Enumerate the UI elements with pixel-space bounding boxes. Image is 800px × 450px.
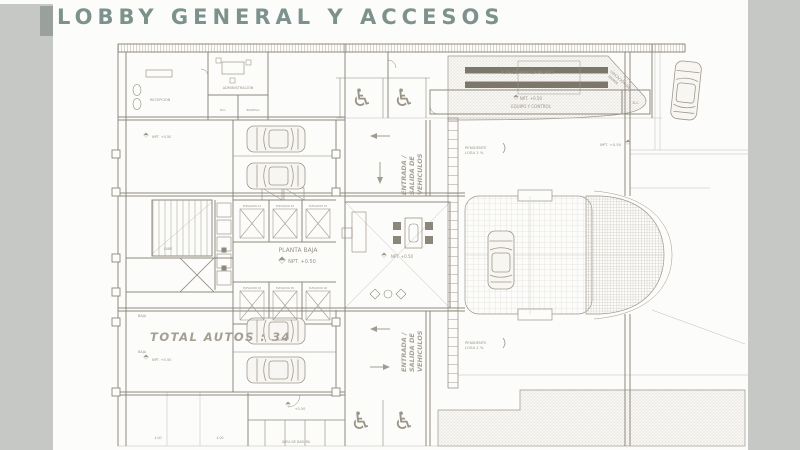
accessible-parking-icon: ♿ xyxy=(351,84,373,112)
car-icon xyxy=(247,163,305,189)
bottom-ramp-hatch xyxy=(438,390,745,446)
elevator-cabs xyxy=(240,209,330,320)
slope-arrow-icon xyxy=(503,143,505,153)
npt-label: NPT. +0.50 xyxy=(152,358,171,362)
car-icon xyxy=(670,60,702,120)
revolving-door xyxy=(180,258,214,292)
room-label-recepcion: RECEPCIÓN xyxy=(150,97,171,102)
elevator-label: ELEVADOR 03 xyxy=(309,204,327,208)
elevator-label: ELEVADOR 02 xyxy=(276,204,294,208)
speed-bump xyxy=(465,82,608,89)
vehicle-access-label: VEHICULOS xyxy=(416,330,424,372)
car-icon xyxy=(247,126,305,152)
vehicle-access-label: VEHICULOS xyxy=(416,153,424,195)
accessible-parking-icon: ♿ xyxy=(350,407,372,435)
room-label-ruta: RUTA DE MANTENIMIENTO xyxy=(501,70,554,75)
arrow-left-icon xyxy=(370,326,390,332)
room-label-administracion: ADMINISTRACIÓN xyxy=(223,85,254,90)
vehicle-access-label: ENTRADA / xyxy=(400,155,408,195)
slope-label: LOSA 2 % xyxy=(465,150,484,155)
stairs-baja-label: BAJA xyxy=(138,350,147,354)
room-label-basura: ÁREA DE BASURA xyxy=(282,439,311,444)
vehicle-access-label: ENTRADA / xyxy=(400,332,408,372)
floor-plan: ♿ ♿ ♿ ♿ TOTAL AUTOS : 34 PLANTA BAJA NPT… xyxy=(0,0,800,450)
stairs-baja-label: BAJA xyxy=(138,314,147,318)
stairs-sube-label: SUBE xyxy=(164,247,173,251)
accessible-parking-icon: ♿ xyxy=(393,407,415,435)
npt-label: NPT. +0.50 xyxy=(520,96,543,101)
npt-label: NPT. +0.50 xyxy=(600,142,622,147)
total-autos-label: TOTAL AUTOS : 34 xyxy=(150,330,291,344)
accessible-parking-icon: ♿ xyxy=(393,84,415,112)
slope-arrow-icon xyxy=(503,338,505,348)
npt-label: NPT. +0.50 xyxy=(152,135,171,139)
dimension-label: 4.00 xyxy=(154,436,161,440)
room-label-bc: B.C. xyxy=(632,101,639,105)
presentation-slide: LOBBY GENERAL Y ACCESOS xyxy=(0,0,800,450)
arrow-left-icon xyxy=(370,133,390,139)
vehicle-access-label: SALIDA DE xyxy=(408,156,416,195)
vehicle-access-label: SALIDA DE xyxy=(408,333,416,372)
planta-baja-label: PLANTA BAJA xyxy=(279,247,319,254)
npt-label: NPT. +0.50 xyxy=(391,254,414,259)
room-label-bodega: BODEGA xyxy=(247,108,261,112)
elevator-label: ELEVADOR 05 xyxy=(276,286,294,290)
elevator-label: ELEVADOR 01 xyxy=(243,204,261,208)
car-icon xyxy=(247,357,305,383)
dimension-label: 4.00 xyxy=(216,436,223,440)
npt-short-label: +0.50 xyxy=(295,407,306,411)
room-label-equipo: EQUIPO Y CONTROL xyxy=(511,104,552,109)
arrow-right-icon xyxy=(370,364,390,370)
npt-label: NPT. +0.50 xyxy=(288,259,316,265)
car-icon xyxy=(488,231,514,289)
elevator-label: ELEVADOR 06 xyxy=(309,286,327,290)
slope-label: LOSA 2 % xyxy=(465,345,484,350)
arrow-down-icon xyxy=(377,162,383,184)
elevator-label: ELEVADOR 04 xyxy=(243,286,261,290)
room-label-wc: W.C. xyxy=(220,108,227,112)
